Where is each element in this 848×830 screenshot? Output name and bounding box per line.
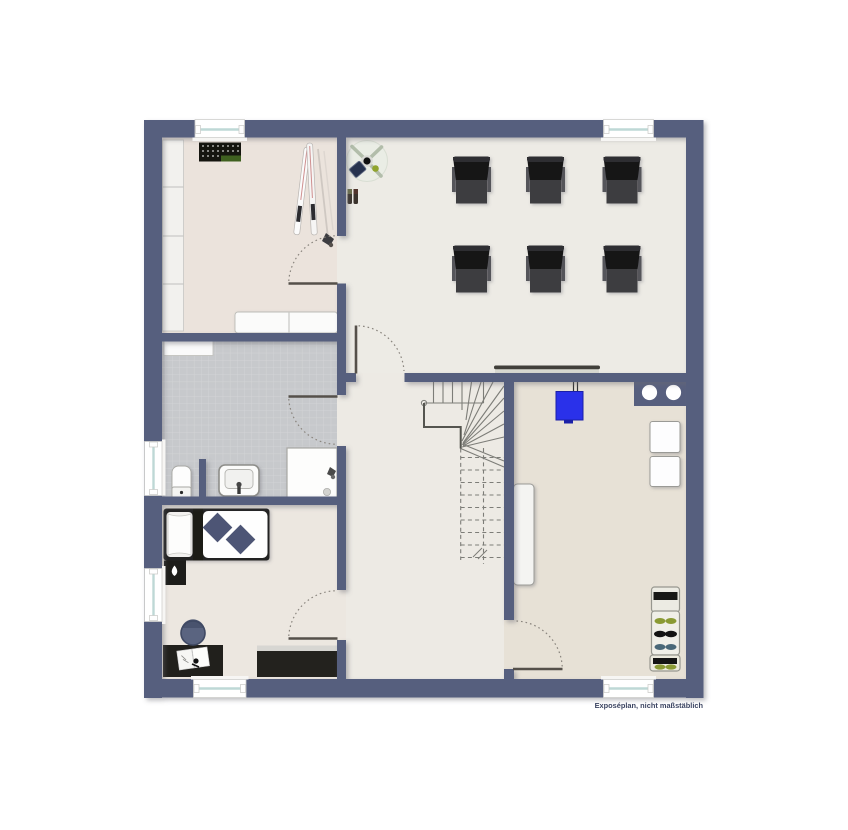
svg-text:Exposéplan, nicht maßstäblich: Exposéplan, nicht maßstäblich [595,701,704,710]
